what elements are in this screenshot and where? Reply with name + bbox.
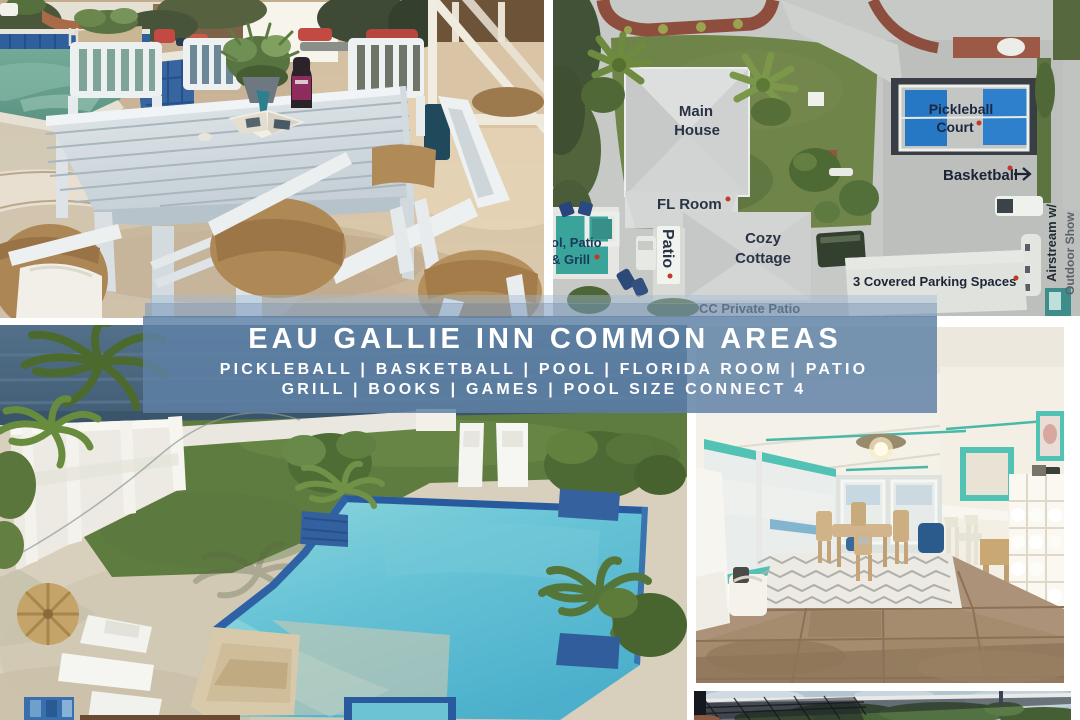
svg-text:House: House [674,122,720,139]
svg-text:Patio: Patio [659,229,676,268]
svg-text:Outdoor Show: Outdoor Show [1063,212,1077,295]
svg-text:Main: Main [679,103,713,120]
svg-text:Pickleball: Pickleball [929,101,994,117]
svg-text:ol, Patio: ol, Patio [553,235,602,250]
svg-text:Cottage: Cottage [735,250,791,267]
svg-text:Court: Court [936,119,974,135]
svg-text:FL Room: FL Room [657,196,722,213]
svg-text:3 Covered Parking Spaces: 3 Covered Parking Spaces [853,274,1016,289]
svg-text:Basketball: Basketball [943,167,1018,184]
svg-text:Cozy: Cozy [745,230,781,247]
svg-text:Airstream w/: Airstream w/ [1044,204,1059,282]
svg-text:& Grill: & Grill [553,252,590,267]
